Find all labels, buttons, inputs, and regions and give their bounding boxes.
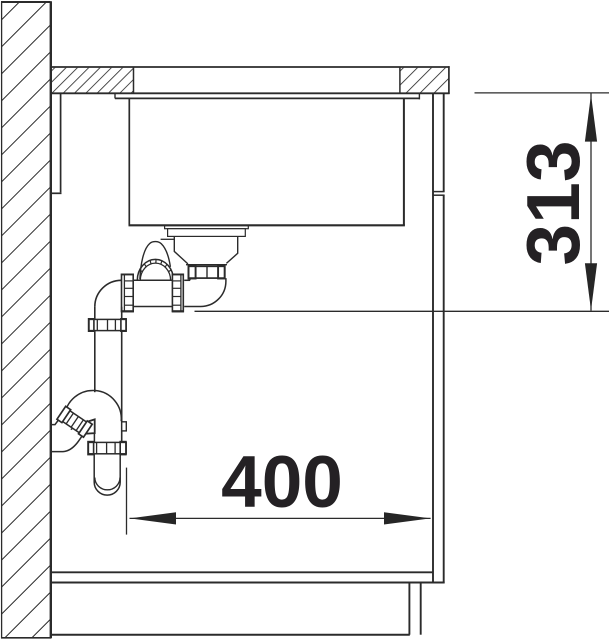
- svg-text:313: 313: [511, 140, 595, 265]
- svg-text:400: 400: [221, 442, 343, 523]
